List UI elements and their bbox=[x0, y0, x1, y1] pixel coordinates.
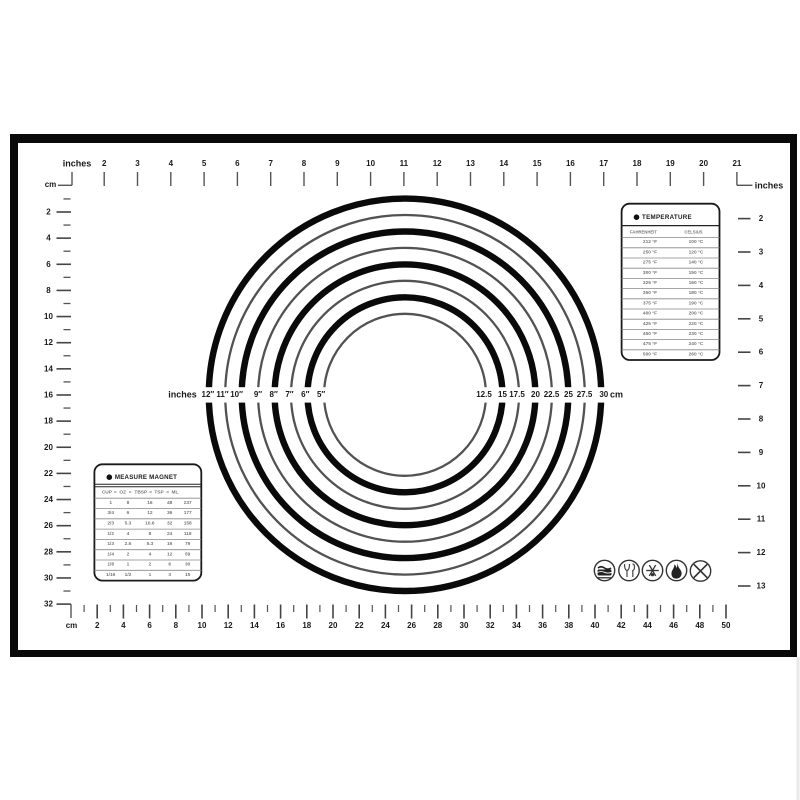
svg-text:cm: cm bbox=[66, 621, 78, 630]
svg-text:13: 13 bbox=[466, 159, 475, 168]
svg-text:16: 16 bbox=[167, 541, 173, 547]
svg-text:9: 9 bbox=[759, 448, 764, 457]
svg-text:13: 13 bbox=[757, 582, 766, 591]
svg-text:36: 36 bbox=[538, 621, 547, 630]
svg-text:1: 1 bbox=[149, 572, 152, 578]
svg-text:7″: 7″ bbox=[285, 390, 293, 399]
svg-text:140 °C: 140 °C bbox=[689, 260, 704, 266]
svg-text:46: 46 bbox=[669, 621, 678, 630]
svg-text:TBSP: TBSP bbox=[134, 490, 148, 496]
svg-text:375 °F: 375 °F bbox=[643, 300, 657, 306]
svg-text:24: 24 bbox=[44, 495, 53, 504]
svg-text:10.6: 10.6 bbox=[145, 520, 155, 526]
svg-text:1: 1 bbox=[109, 500, 112, 506]
svg-text:=: = bbox=[114, 491, 117, 496]
svg-text:190 °C: 190 °C bbox=[689, 300, 704, 306]
svg-text:cm: cm bbox=[45, 180, 57, 189]
svg-text:10: 10 bbox=[366, 159, 375, 168]
svg-text:14: 14 bbox=[44, 364, 53, 373]
svg-text:212 °F: 212 °F bbox=[643, 239, 657, 245]
svg-text:10: 10 bbox=[198, 621, 207, 630]
svg-text:16: 16 bbox=[44, 390, 53, 399]
svg-text:6: 6 bbox=[759, 348, 764, 357]
svg-text:150 °C: 150 °C bbox=[689, 270, 704, 276]
svg-text:16: 16 bbox=[566, 159, 575, 168]
svg-text:TEMPERATURE: TEMPERATURE bbox=[642, 214, 692, 221]
svg-text:22: 22 bbox=[355, 621, 364, 630]
svg-text:12: 12 bbox=[757, 548, 766, 557]
svg-text:2: 2 bbox=[759, 214, 764, 223]
svg-text:=: = bbox=[129, 491, 132, 496]
svg-text:30: 30 bbox=[460, 621, 469, 630]
svg-text:38: 38 bbox=[564, 621, 573, 630]
svg-text:118: 118 bbox=[184, 531, 192, 537]
svg-text:12.5: 12.5 bbox=[476, 390, 492, 399]
svg-text:30: 30 bbox=[599, 390, 608, 399]
svg-text:3: 3 bbox=[759, 248, 764, 257]
svg-text:16: 16 bbox=[276, 621, 285, 630]
svg-text:=: = bbox=[149, 491, 152, 496]
svg-text:475 °F: 475 °F bbox=[643, 341, 657, 347]
svg-text:36: 36 bbox=[167, 510, 173, 516]
svg-text:11: 11 bbox=[757, 515, 766, 524]
svg-text:50: 50 bbox=[722, 621, 731, 630]
svg-text:12: 12 bbox=[44, 338, 53, 347]
svg-text:34: 34 bbox=[512, 621, 521, 630]
svg-text:160 °C: 160 °C bbox=[689, 280, 704, 286]
svg-text:275 °F: 275 °F bbox=[643, 260, 657, 266]
svg-text:25: 25 bbox=[564, 390, 573, 399]
svg-text:20: 20 bbox=[44, 443, 53, 452]
svg-text:32: 32 bbox=[486, 621, 495, 630]
svg-text:12: 12 bbox=[224, 621, 233, 630]
svg-text:20: 20 bbox=[699, 159, 708, 168]
svg-text:5.3: 5.3 bbox=[125, 520, 132, 526]
svg-text:inches: inches bbox=[755, 180, 784, 190]
svg-text:48: 48 bbox=[167, 500, 173, 506]
svg-text:220 °C: 220 °C bbox=[689, 321, 704, 327]
svg-text:240 °C: 240 °C bbox=[689, 341, 704, 347]
svg-text:5: 5 bbox=[759, 314, 764, 323]
svg-text:2: 2 bbox=[127, 551, 130, 557]
svg-text:15: 15 bbox=[533, 159, 542, 168]
svg-text:500 °F: 500 °F bbox=[643, 351, 657, 357]
svg-text:24: 24 bbox=[167, 531, 173, 537]
svg-text:10: 10 bbox=[44, 312, 53, 321]
svg-text:200 °C: 200 °C bbox=[689, 311, 704, 317]
svg-text:4: 4 bbox=[127, 531, 130, 537]
svg-text:12: 12 bbox=[433, 159, 442, 168]
svg-text:24: 24 bbox=[381, 621, 390, 630]
svg-text:42: 42 bbox=[617, 621, 626, 630]
svg-text:12: 12 bbox=[167, 551, 173, 557]
svg-text:21: 21 bbox=[732, 159, 741, 168]
svg-text:28: 28 bbox=[433, 621, 442, 630]
svg-text:=: = bbox=[166, 491, 169, 496]
svg-text:8: 8 bbox=[302, 159, 307, 168]
svg-text:8″: 8″ bbox=[270, 390, 278, 399]
svg-text:44: 44 bbox=[643, 621, 652, 630]
svg-text:100 °C: 100 °C bbox=[689, 239, 704, 245]
svg-text:OZ: OZ bbox=[119, 490, 126, 496]
svg-text:18: 18 bbox=[302, 621, 311, 630]
svg-text:2.6: 2.6 bbox=[125, 541, 132, 547]
svg-text:30: 30 bbox=[185, 562, 191, 568]
svg-text:177: 177 bbox=[184, 510, 192, 516]
svg-text:300 °F: 300 °F bbox=[643, 270, 657, 276]
svg-text:20: 20 bbox=[329, 621, 338, 630]
svg-text:6: 6 bbox=[127, 510, 130, 516]
svg-text:17: 17 bbox=[599, 159, 608, 168]
svg-text:260 °C: 260 °C bbox=[689, 351, 704, 357]
svg-text:425 °F: 425 °F bbox=[643, 321, 657, 327]
svg-text:CELSIUS: CELSIUS bbox=[684, 230, 702, 235]
svg-text:350 °F: 350 °F bbox=[643, 290, 657, 296]
svg-text:48: 48 bbox=[695, 621, 704, 630]
svg-text:6: 6 bbox=[46, 260, 51, 269]
svg-text:4: 4 bbox=[149, 551, 152, 557]
svg-text:inches: inches bbox=[168, 390, 197, 400]
svg-text:cm: cm bbox=[610, 390, 623, 400]
svg-text:22: 22 bbox=[44, 469, 53, 478]
svg-text:17.5: 17.5 bbox=[509, 390, 525, 399]
svg-text:inches: inches bbox=[63, 159, 92, 169]
svg-text:3/4: 3/4 bbox=[107, 510, 114, 516]
svg-text:2/3: 2/3 bbox=[107, 520, 114, 526]
svg-text:16: 16 bbox=[147, 500, 153, 506]
svg-text:79: 79 bbox=[185, 541, 191, 547]
svg-text:32: 32 bbox=[44, 600, 53, 609]
svg-text:6: 6 bbox=[168, 562, 171, 568]
svg-text:FAHRENHEIT: FAHRENHEIT bbox=[630, 230, 657, 235]
svg-text:8: 8 bbox=[46, 286, 51, 295]
svg-text:120 °C: 120 °C bbox=[689, 249, 704, 255]
svg-text:1: 1 bbox=[127, 562, 130, 568]
svg-text:32: 32 bbox=[167, 520, 173, 526]
svg-text:11″: 11″ bbox=[216, 390, 228, 399]
svg-text:6″: 6″ bbox=[301, 390, 309, 399]
svg-text:5: 5 bbox=[202, 159, 207, 168]
svg-text:8: 8 bbox=[759, 415, 764, 424]
svg-text:8: 8 bbox=[174, 621, 179, 630]
svg-text:2: 2 bbox=[102, 159, 107, 168]
svg-text:3: 3 bbox=[135, 159, 140, 168]
svg-text:MEASURE MAGNET: MEASURE MAGNET bbox=[115, 474, 177, 481]
svg-text:6: 6 bbox=[235, 159, 240, 168]
svg-text:4: 4 bbox=[169, 159, 174, 168]
svg-text:14: 14 bbox=[499, 159, 508, 168]
svg-text:11: 11 bbox=[400, 159, 409, 168]
svg-text:14: 14 bbox=[250, 621, 259, 630]
svg-text:15: 15 bbox=[498, 390, 507, 399]
svg-text:1/8: 1/8 bbox=[107, 562, 114, 568]
svg-text:158: 158 bbox=[184, 520, 192, 526]
svg-text:28: 28 bbox=[44, 547, 53, 556]
svg-text:1/2: 1/2 bbox=[125, 572, 132, 578]
svg-text:20: 20 bbox=[531, 390, 540, 399]
svg-text:12: 12 bbox=[147, 510, 153, 516]
svg-text:180 °C: 180 °C bbox=[689, 290, 704, 296]
svg-text:4: 4 bbox=[759, 281, 764, 290]
svg-text:1/16: 1/16 bbox=[106, 572, 116, 578]
svg-text:450 °F: 450 °F bbox=[643, 331, 657, 337]
svg-text:325 °F: 325 °F bbox=[643, 280, 657, 286]
svg-text:2: 2 bbox=[95, 621, 100, 630]
svg-text:400 °F: 400 °F bbox=[643, 311, 657, 317]
svg-text:26: 26 bbox=[44, 521, 53, 530]
svg-text:4: 4 bbox=[121, 621, 126, 630]
svg-text:3: 3 bbox=[168, 572, 171, 578]
svg-text:TSP: TSP bbox=[154, 490, 164, 496]
svg-text:10: 10 bbox=[757, 481, 766, 490]
svg-text:8: 8 bbox=[149, 531, 152, 537]
svg-text:10″: 10″ bbox=[230, 390, 243, 399]
svg-text:7: 7 bbox=[268, 159, 273, 168]
svg-text:59: 59 bbox=[185, 551, 191, 557]
svg-text:CUP: CUP bbox=[102, 490, 113, 496]
svg-text:19: 19 bbox=[666, 159, 675, 168]
svg-text:30: 30 bbox=[44, 573, 53, 582]
svg-text:26: 26 bbox=[407, 621, 416, 630]
svg-text:22.5: 22.5 bbox=[544, 390, 560, 399]
svg-text:250 °F: 250 °F bbox=[643, 249, 657, 255]
svg-text:230 °C: 230 °C bbox=[689, 331, 704, 337]
svg-text:1/4: 1/4 bbox=[107, 551, 114, 557]
svg-text:7: 7 bbox=[759, 381, 764, 390]
svg-text:40: 40 bbox=[591, 621, 600, 630]
svg-text:2: 2 bbox=[46, 208, 51, 217]
svg-text:ML: ML bbox=[172, 490, 179, 496]
svg-text:18: 18 bbox=[633, 159, 642, 168]
svg-text:237: 237 bbox=[184, 500, 192, 506]
svg-text:6: 6 bbox=[147, 621, 152, 630]
svg-text:1/3: 1/3 bbox=[107, 541, 114, 547]
svg-text:2: 2 bbox=[149, 562, 152, 568]
svg-text:12″: 12″ bbox=[202, 390, 215, 399]
svg-text:15: 15 bbox=[185, 572, 191, 578]
svg-text:9″: 9″ bbox=[254, 390, 262, 399]
svg-text:5″: 5″ bbox=[317, 390, 325, 399]
svg-text:18: 18 bbox=[44, 417, 53, 426]
svg-text:8: 8 bbox=[127, 500, 130, 506]
svg-text:5.3: 5.3 bbox=[147, 541, 154, 547]
svg-text:27.5: 27.5 bbox=[577, 390, 593, 399]
svg-text:4: 4 bbox=[46, 234, 51, 243]
svg-text:9: 9 bbox=[335, 159, 340, 168]
svg-text:1/2: 1/2 bbox=[107, 531, 114, 537]
